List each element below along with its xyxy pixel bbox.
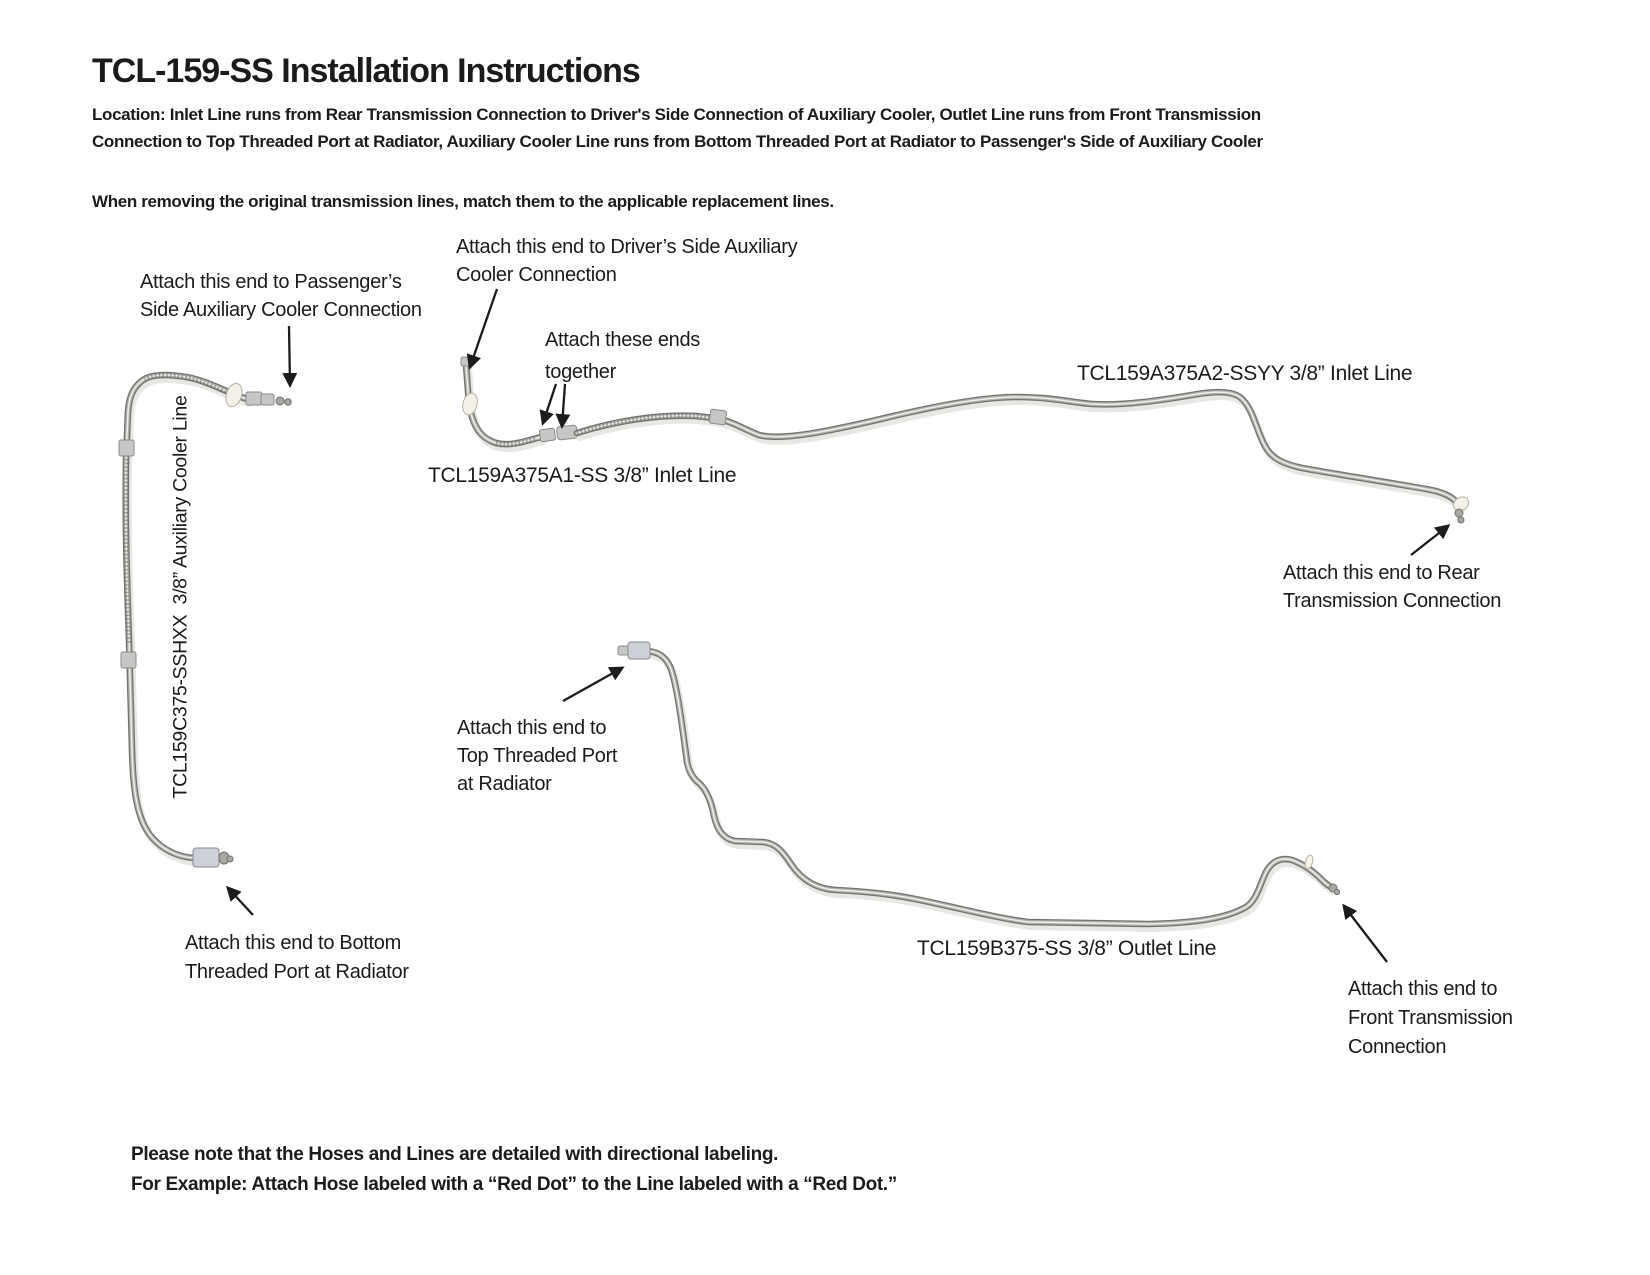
label-line: Top Threaded Port: [457, 742, 617, 770]
label-line: Attach this end to: [457, 714, 617, 742]
ferrule-fitting: [119, 440, 134, 456]
threaded-stub: [618, 646, 629, 655]
label-top-threaded-port: Attach this end to Top Threaded Port at …: [457, 714, 617, 798]
label-line: at Radiator: [457, 770, 617, 798]
arrow-top-port-end: [563, 668, 622, 701]
hex-nut: [193, 848, 219, 867]
label-line: Threaded Port at Radiator: [185, 958, 409, 987]
hex-nut: [628, 642, 650, 659]
label-outlet-line-b: TCL159B375-SS 3/8” Outlet Line: [917, 937, 1216, 961]
ferrule-fitting: [709, 409, 727, 425]
diagram-canvas: [0, 0, 1650, 1275]
label-line: Cooler Connection: [456, 261, 797, 289]
callout-arrows: [228, 289, 1448, 962]
barb-tip: [285, 399, 291, 405]
arrow-bottom-port-end: [228, 888, 253, 915]
arrow-driver-end: [470, 289, 497, 367]
label-attach-together: Attach these ends together: [545, 324, 700, 388]
ferrule-fitting: [121, 652, 136, 668]
white-washer: [461, 392, 480, 417]
barb-tip: [276, 397, 284, 405]
label-line: Attach this end to Driver’s Side Auxilia…: [456, 233, 797, 261]
arrow-join-left: [543, 384, 556, 423]
label-inlet-line-a2: TCL159A375A2-SSYY 3/8” Inlet Line: [1077, 362, 1412, 386]
label-passenger-connection: Attach this end to Passenger’s Side Auxi…: [140, 268, 422, 324]
label-line: Attach this end to: [1348, 975, 1513, 1004]
barb-tip: [1458, 517, 1464, 523]
label-line: Attach this end to Passenger’s: [140, 268, 422, 296]
barb-tip: [1455, 509, 1463, 517]
inlet-line-a2: [577, 392, 1471, 523]
label-line: Connection: [1348, 1033, 1513, 1062]
label-line: Side Auxiliary Cooler Connection: [140, 296, 422, 324]
label-line: Attach these ends: [545, 324, 700, 356]
union-fitting: [539, 428, 556, 442]
arrow-rear-end: [1411, 526, 1448, 555]
label-rear-transmission: Attach this end to Rear Transmission Con…: [1283, 559, 1501, 615]
barb-tip: [227, 856, 233, 862]
end-fitting: [261, 394, 274, 405]
auxiliary-cooler-line: [119, 375, 291, 867]
label-line: together: [545, 356, 700, 388]
outlet-line-b: [618, 642, 1340, 928]
note-line: Please note that the Hoses and Lines are…: [131, 1140, 897, 1170]
label-front-transmission: Attach this end to Front Transmission Co…: [1348, 975, 1513, 1062]
label-bottom-threaded-port: Attach this end to Bottom Threaded Port …: [185, 929, 409, 987]
barb-tip: [1334, 889, 1339, 894]
end-fitting: [461, 357, 471, 366]
label-line: Attach this end to Rear: [1283, 559, 1501, 587]
label-driver-connection: Attach this end to Driver’s Side Auxilia…: [456, 233, 797, 289]
instruction-sheet: { "page": { "title": "TCL-159-SS Install…: [0, 0, 1650, 1275]
arrow-passenger-end: [289, 326, 290, 385]
label-inlet-line-a1: TCL159A375A1-SS 3/8” Inlet Line: [428, 464, 736, 488]
label-line: Transmission Connection: [1283, 587, 1501, 615]
label-line: Front Transmission: [1348, 1004, 1513, 1033]
note-line: For Example: Attach Hose labeled with a …: [131, 1170, 897, 1200]
arrow-front-end: [1344, 906, 1387, 962]
label-line: Attach this end to Bottom: [185, 929, 409, 958]
label-aux-cooler-line: TCL159C375-SSHXX 3/8” Auxiliary Cooler L…: [170, 395, 193, 798]
arrow-join-right: [562, 384, 565, 426]
white-clip: [1304, 854, 1314, 869]
end-fitting: [246, 392, 262, 405]
directional-labeling-note: Please note that the Hoses and Lines are…: [131, 1140, 897, 1200]
